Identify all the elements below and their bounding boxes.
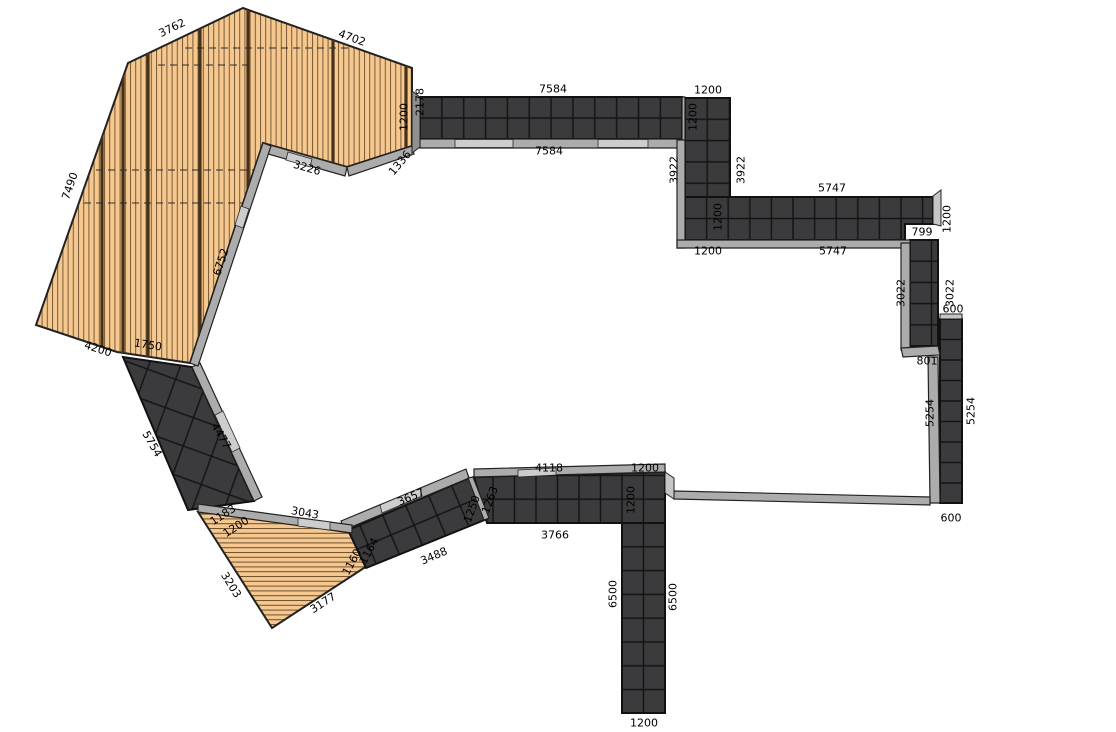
dimension-label: 1200 bbox=[712, 203, 725, 231]
dimension-label: 801 bbox=[917, 355, 938, 368]
dimension-label: 7584 bbox=[535, 145, 563, 158]
dimension-label: 4118 bbox=[535, 462, 563, 475]
edging-joint-top bbox=[682, 97, 685, 140]
dimension-label: 3766 bbox=[541, 529, 569, 542]
dimension-label: 3922 bbox=[668, 156, 681, 184]
dimension-label: 6500 bbox=[607, 580, 620, 608]
dimension-label: 5254 bbox=[924, 399, 937, 427]
dimension-label: 1200 bbox=[694, 84, 722, 97]
edging-strip-5254-left[interactable] bbox=[928, 357, 940, 503]
floor-plan-canvas: 3762470274904200175067523226133612002178… bbox=[0, 0, 1116, 732]
tile-band-3022[interactable] bbox=[910, 240, 938, 346]
dimension-label: 3922 bbox=[735, 156, 748, 184]
edging-segment bbox=[455, 140, 513, 148]
edging-segment bbox=[598, 140, 648, 148]
dimension-label: 1200 bbox=[630, 717, 658, 730]
dimension-label: 6500 bbox=[667, 583, 680, 611]
dimension-label: 799 bbox=[912, 226, 933, 239]
dimension-label: 5254 bbox=[965, 397, 978, 425]
dimension-label: 600 bbox=[943, 303, 964, 316]
tile-band-top[interactable] bbox=[420, 97, 682, 139]
dimension-label: 1200 bbox=[631, 462, 659, 475]
dimension-label: 7584 bbox=[539, 83, 567, 96]
dimension-label: 1200 bbox=[694, 245, 722, 258]
dimension-label: 5747 bbox=[818, 182, 846, 195]
dimension-label: 1200 bbox=[687, 103, 700, 131]
dimension-label: 1200 bbox=[625, 486, 638, 514]
dimension-label: 1200 bbox=[941, 205, 954, 233]
dimension-label: 3022 bbox=[895, 279, 908, 307]
dimension-label: 1200 bbox=[398, 103, 411, 131]
dimension-label: 5747 bbox=[819, 245, 847, 258]
dimension-label: 2178 bbox=[414, 88, 427, 116]
dimension-label: 600 bbox=[941, 512, 962, 525]
tile-band-5254[interactable] bbox=[940, 319, 962, 503]
tile-band-6500[interactable] bbox=[622, 523, 665, 713]
plan-viewport: 3762470274904200175067523226133612002178… bbox=[0, 0, 1116, 732]
